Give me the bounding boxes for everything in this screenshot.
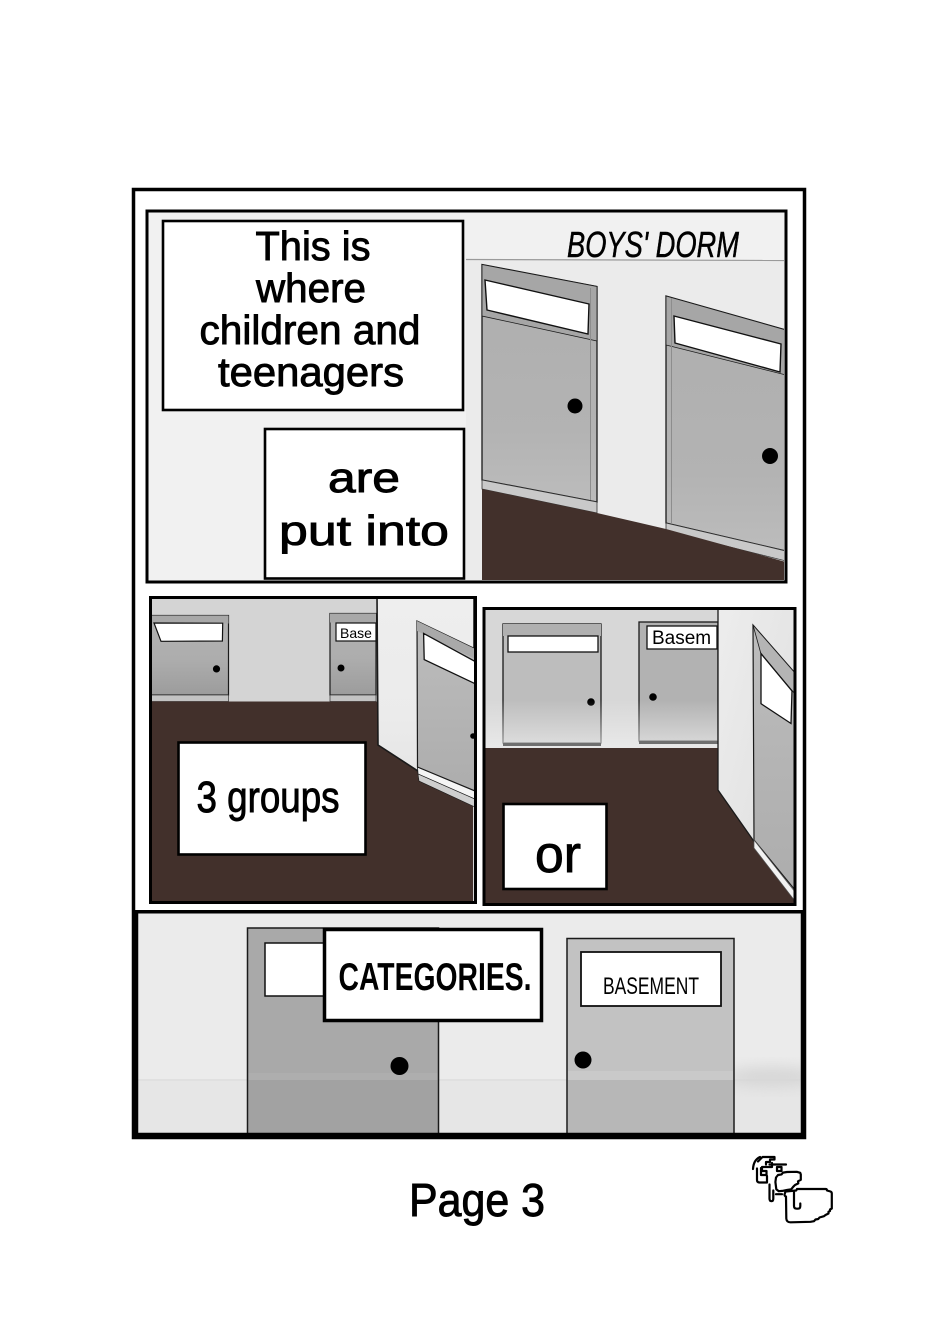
svg-text:3 groups: 3 groups <box>197 773 340 822</box>
svg-text:or: or <box>535 826 581 884</box>
svg-text:BASEMENT: BASEMENT <box>603 973 699 1000</box>
svg-text:CATEGORIES.: CATEGORIES. <box>339 956 532 999</box>
svg-text:put into: put into <box>279 507 449 554</box>
svg-text:children and: children and <box>200 307 421 353</box>
svg-text:BOYS' DORM: BOYS' DORM <box>567 224 739 265</box>
svg-text:teenagers: teenagers <box>218 349 404 395</box>
svg-text:where: where <box>255 265 366 311</box>
svg-text:This is: This is <box>256 223 371 269</box>
svg-text:Page 3: Page 3 <box>409 1174 545 1226</box>
svg-text:Basem: Basem <box>652 628 711 649</box>
svg-text:are: are <box>328 454 400 501</box>
svg-text:Base: Base <box>340 625 372 641</box>
